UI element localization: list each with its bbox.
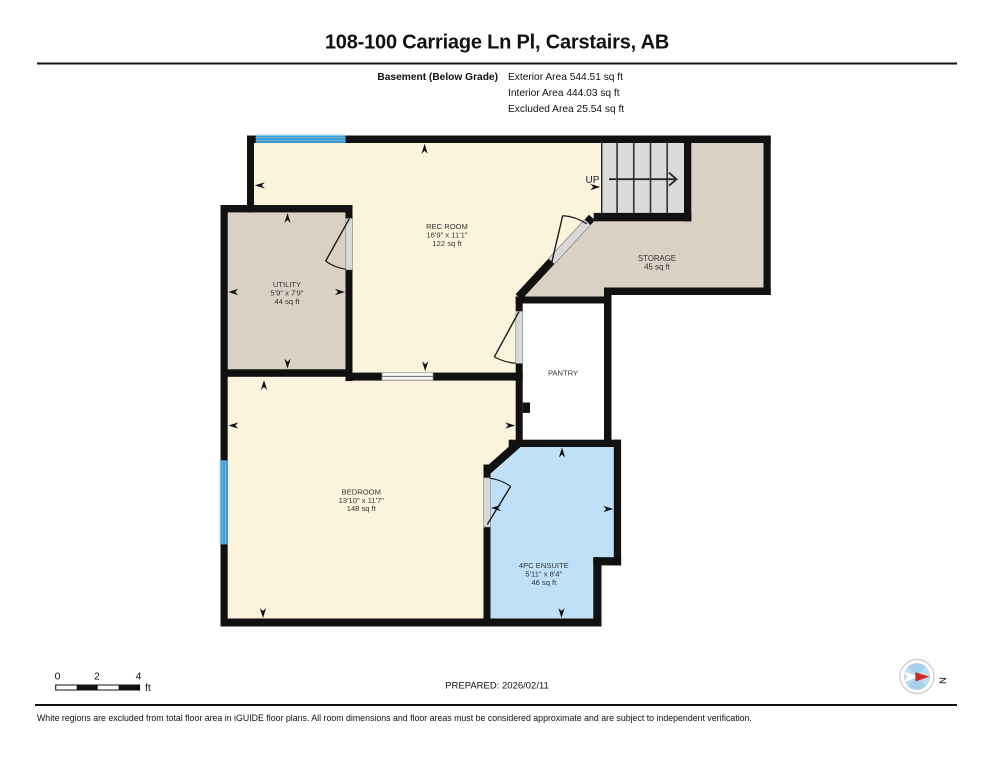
svg-text:0: 0 (55, 671, 61, 683)
svg-text:45 sq ft: 45 sq ft (644, 262, 670, 271)
svg-text:PANTRY: PANTRY (548, 369, 578, 378)
svg-text:Excluded Area 25.54 sq ft: Excluded Area 25.54 sq ft (508, 104, 624, 115)
svg-text:108-100 Carriage Ln Pl, Carsta: 108-100 Carriage Ln Pl, Carstairs, AB (325, 31, 669, 53)
svg-text:148 sq ft: 148 sq ft (347, 504, 377, 513)
svg-text:44 sq ft: 44 sq ft (275, 297, 301, 306)
svg-text:2: 2 (94, 671, 100, 683)
svg-text:Basement (Below Grade): Basement (Below Grade) (377, 72, 498, 83)
svg-text:N: N (937, 677, 948, 684)
svg-text:4: 4 (136, 671, 142, 683)
svg-text:122 sq ft: 122 sq ft (432, 239, 462, 248)
svg-text:Interior Area 444.03 sq ft: Interior Area 444.03 sq ft (508, 88, 620, 99)
svg-text:White regions are excluded fro: White regions are excluded from total fl… (37, 713, 752, 723)
svg-text:46 sq ft: 46 sq ft (531, 578, 557, 587)
svg-text:ft: ft (145, 682, 151, 694)
svg-text:UP: UP (586, 175, 600, 186)
svg-text:Exterior Area 544.51 sq ft: Exterior Area 544.51 sq ft (508, 72, 623, 83)
svg-text:PREPARED: 2026/02/11: PREPARED: 2026/02/11 (445, 681, 549, 692)
